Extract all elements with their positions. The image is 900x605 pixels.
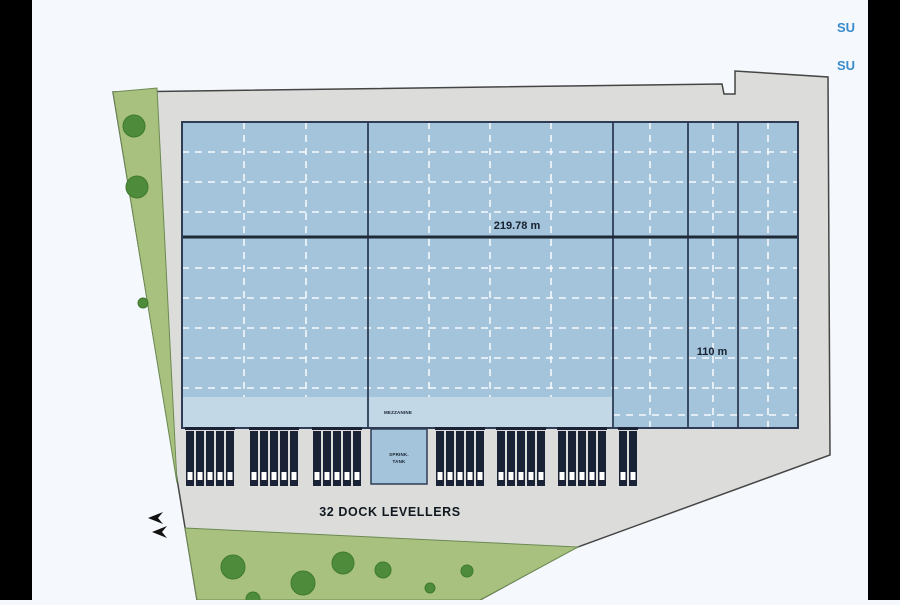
letterbox-right — [868, 0, 900, 600]
dock-door-strip — [618, 427, 638, 430]
tree-icon — [425, 583, 435, 593]
truck-cab-marker — [570, 472, 575, 480]
dock-levellers-label: 32 DOCK LEVELLERS — [319, 505, 460, 519]
truck-cab-marker — [458, 472, 463, 480]
dock-door-strip — [557, 427, 607, 430]
truck-cab-marker — [590, 472, 595, 480]
tree-icon — [221, 555, 245, 579]
truck-cab-marker — [208, 472, 213, 480]
truck-cab-marker — [631, 472, 636, 480]
truck-cab-marker — [355, 472, 360, 480]
truck-cab-marker — [188, 472, 193, 480]
tree-icon — [375, 562, 391, 578]
truck-cab-marker — [292, 472, 297, 480]
dock-door-strip — [185, 427, 235, 430]
truck-cab-marker — [218, 472, 223, 480]
tank-box-label-line2: TANK — [393, 459, 407, 464]
truck-cab-marker — [509, 472, 514, 480]
truck-cab-marker — [448, 472, 453, 480]
truck-cab-marker — [228, 472, 233, 480]
truck-cab-marker — [282, 472, 287, 480]
truck-cab-marker — [325, 472, 330, 480]
dock-door-strip — [312, 427, 362, 430]
corner-label-top: SU — [837, 20, 855, 35]
tree-icon — [461, 565, 473, 577]
site-plan-canvas: 219.78 m 110 m 32 DOCK LEVELLERS MEZZANI… — [0, 0, 900, 600]
width-dimension-label: 219.78 m — [494, 220, 541, 232]
truck-cab-marker — [621, 472, 626, 480]
truck-cab-marker — [272, 472, 277, 480]
dock-door-strip — [435, 427, 485, 430]
tree-icon — [332, 552, 354, 574]
truck-cab-marker — [529, 472, 534, 480]
truck-cab-marker — [580, 472, 585, 480]
truck-cab-marker — [262, 472, 267, 480]
truck-cab-marker — [600, 472, 605, 480]
dock-door-strip — [249, 427, 299, 430]
truck-cab-marker — [478, 472, 483, 480]
dock-door-strip — [496, 427, 546, 430]
truck-cab-marker — [468, 472, 473, 480]
tree-icon — [123, 115, 145, 137]
truck-cab-marker — [438, 472, 443, 480]
letterbox-left — [0, 0, 32, 600]
truck-cab-marker — [560, 472, 565, 480]
tank-box-label-line1: SPRINK. — [389, 452, 409, 457]
tree-icon — [138, 298, 148, 308]
truck-cab-marker — [315, 472, 320, 480]
truck-cab-marker — [335, 472, 340, 480]
truck-cab-marker — [499, 472, 504, 480]
truck-cab-marker — [198, 472, 203, 480]
truck-cab-marker — [519, 472, 524, 480]
truck-cab-marker — [539, 472, 544, 480]
tree-icon — [126, 176, 148, 198]
truck-cab-marker — [345, 472, 350, 480]
corner-label-bottom: SU — [837, 58, 855, 73]
truck-cab-marker — [252, 472, 257, 480]
tree-icon — [291, 571, 315, 595]
height-dimension-label: 110 m — [697, 346, 728, 358]
apron-small-label: MEZZANINE — [384, 410, 412, 415]
